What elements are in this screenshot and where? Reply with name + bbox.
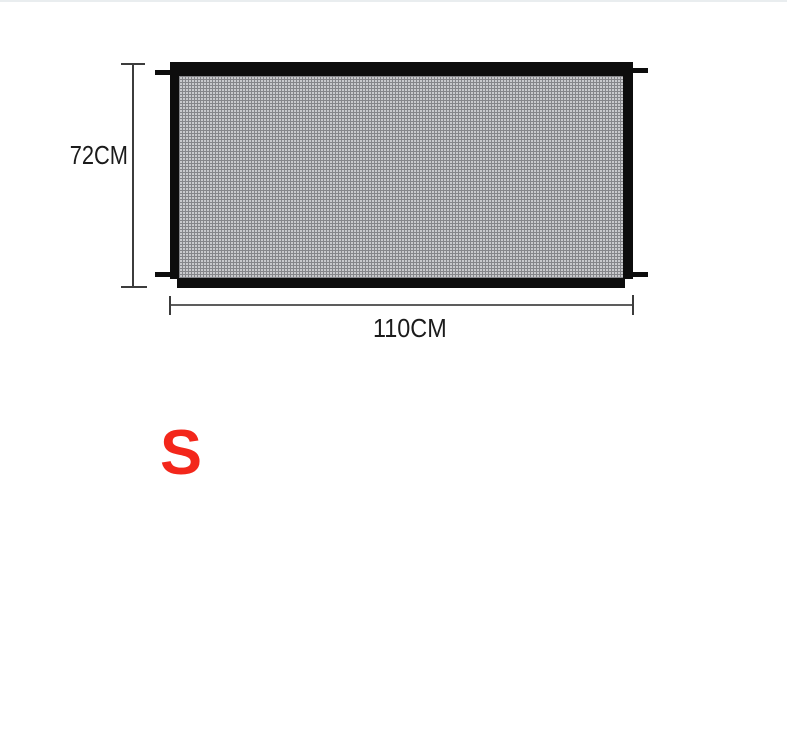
width-dimension-label: 110CM: [373, 315, 447, 341]
mount-tab-bottom-left: [155, 272, 170, 277]
gate-mesh-panel: [179, 76, 623, 278]
height-dimension-cap-top: [121, 63, 145, 65]
height-dimension-cap-bottom: [121, 286, 147, 288]
width-dimension-tick-left: [169, 296, 171, 315]
height-dimension-label: 72CM: [52, 142, 128, 168]
product-diagram-canvas: 72CM 110CM S: [0, 0, 787, 738]
gate-frame: [170, 62, 633, 279]
width-dimension-line: [170, 304, 633, 306]
mount-tab-bottom-right: [633, 272, 648, 277]
gate-bottom-bar: [177, 279, 625, 288]
height-dimension-line: [132, 64, 134, 287]
mount-tab-top-left: [155, 70, 170, 75]
mount-tab-top-right: [633, 68, 648, 73]
size-letter: S: [160, 422, 202, 485]
width-dimension-tick-right: [632, 295, 634, 315]
